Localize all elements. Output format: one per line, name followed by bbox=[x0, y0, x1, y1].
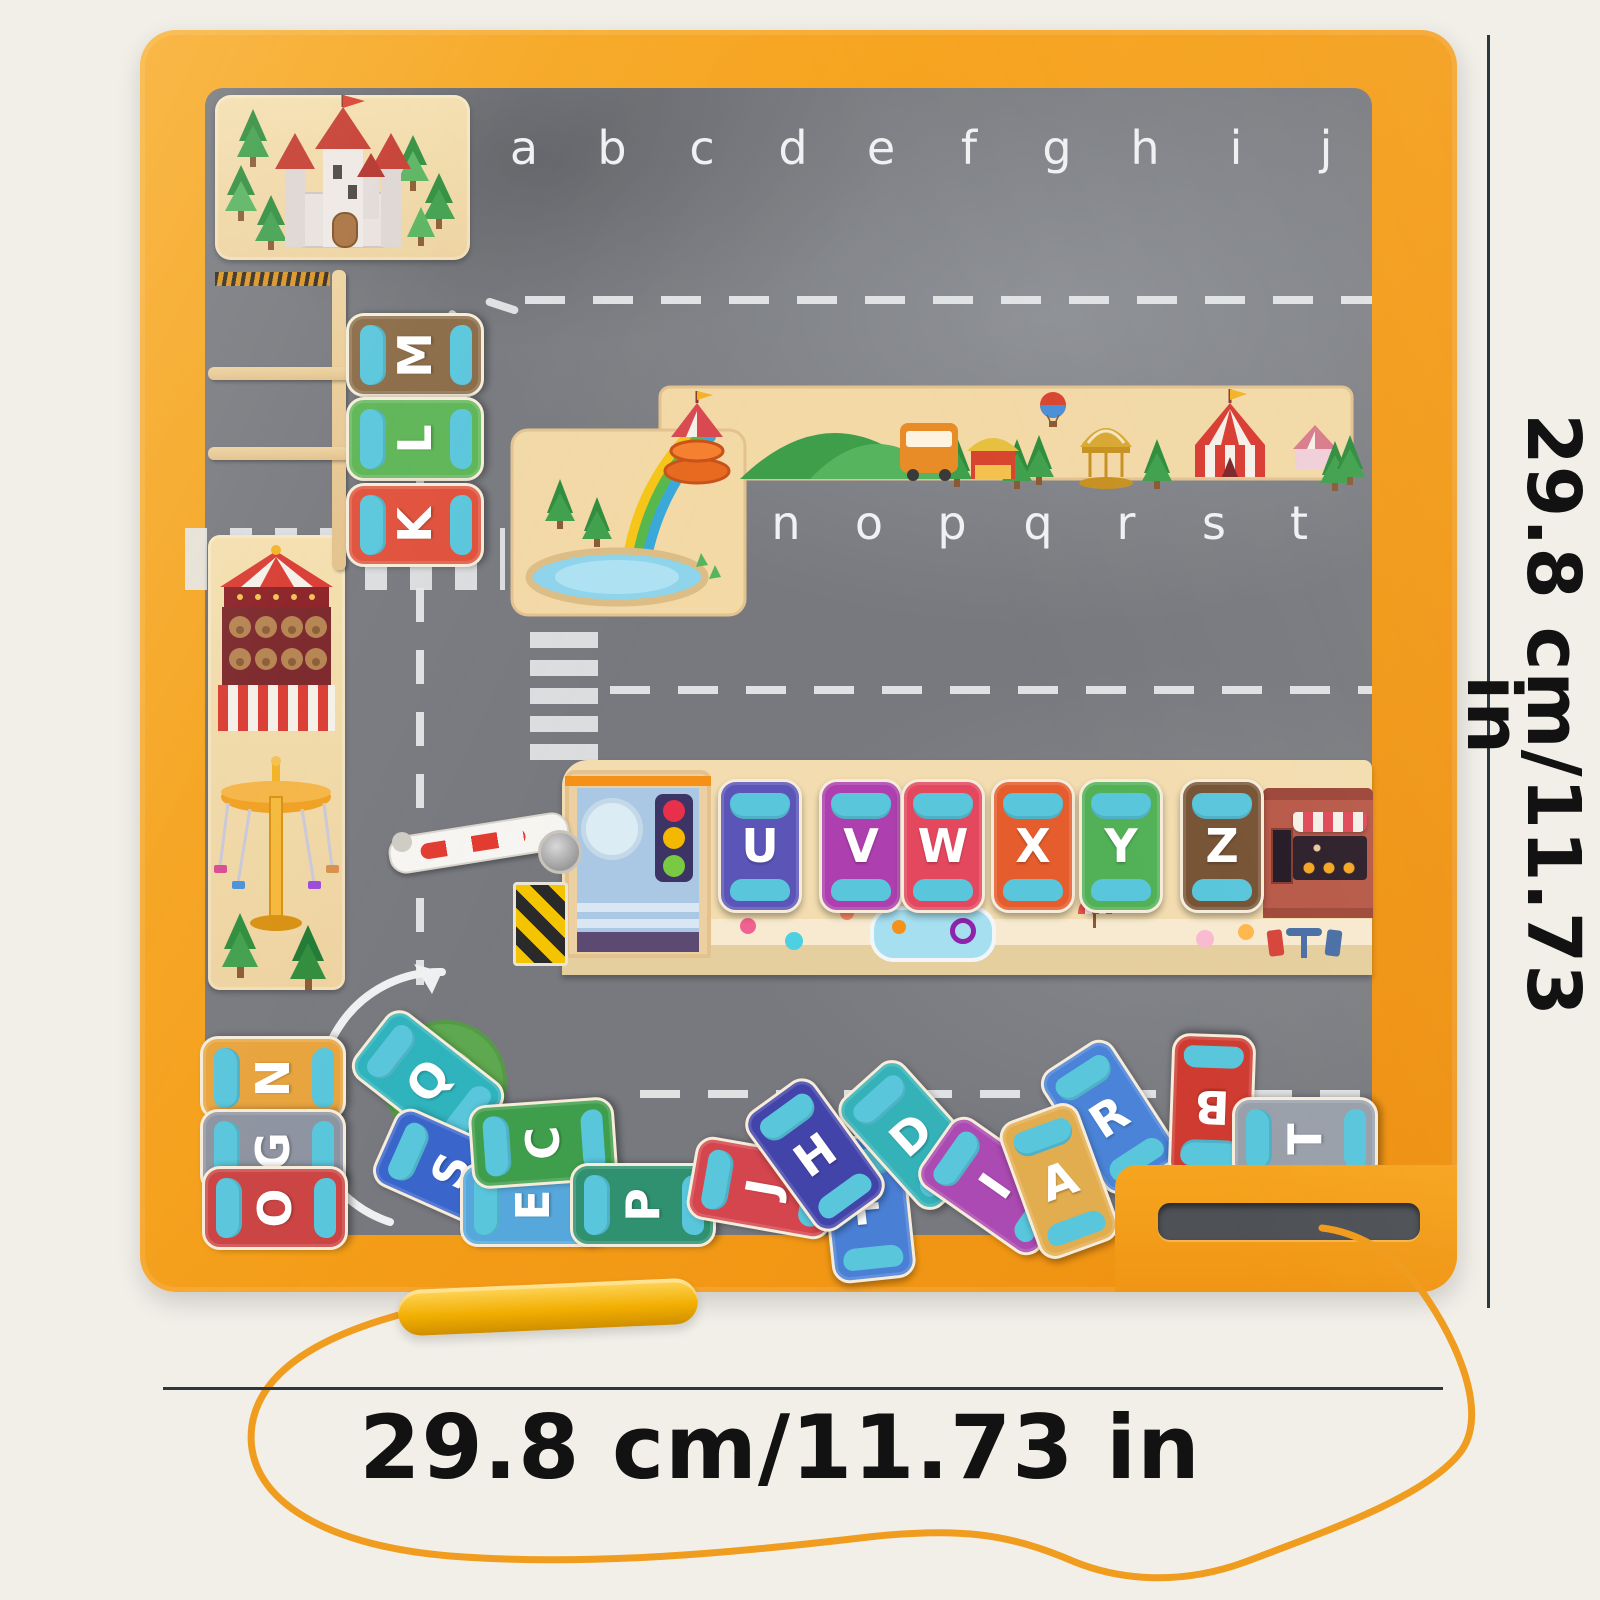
car-letter: U bbox=[741, 819, 778, 873]
candy-decor bbox=[1238, 924, 1254, 940]
carnival-booth-illustration bbox=[208, 535, 345, 990]
car-letter: C bbox=[515, 1124, 571, 1161]
slot-wall bbox=[332, 270, 346, 570]
castle-panel bbox=[215, 95, 470, 260]
candy-decor bbox=[740, 918, 756, 934]
letter-car-Z: Z bbox=[1180, 779, 1264, 913]
car-letter: T bbox=[1278, 1123, 1332, 1154]
cafe-table bbox=[1286, 928, 1322, 936]
car-letter: V bbox=[843, 819, 879, 873]
hazard-post bbox=[513, 882, 568, 966]
letter-car-U: U bbox=[718, 779, 802, 913]
car-letter: W bbox=[918, 819, 969, 873]
car-letter: M bbox=[388, 332, 442, 378]
letter-car-O: O bbox=[202, 1166, 348, 1250]
car-letter: B bbox=[1194, 1079, 1231, 1134]
car-letter: H bbox=[784, 1122, 847, 1188]
letter-car-W: W bbox=[901, 779, 985, 913]
swing-ride-illustration bbox=[214, 756, 339, 931]
dimension-line-horizontal bbox=[163, 1387, 1443, 1390]
cafe-chair bbox=[1324, 929, 1342, 957]
letter-car-X: X bbox=[991, 779, 1075, 913]
car-letter: N bbox=[246, 1059, 300, 1098]
booth-window bbox=[581, 798, 643, 860]
car-letter: Z bbox=[1205, 819, 1238, 873]
carnival-panel bbox=[208, 535, 345, 990]
slot-letter-e: e bbox=[851, 119, 911, 177]
letter-car-V: V bbox=[819, 779, 903, 913]
slot-letter-r: r bbox=[1096, 494, 1156, 552]
cafe-illustration bbox=[1263, 788, 1373, 918]
letter-car-M: M bbox=[346, 313, 484, 397]
pinwheel-decor bbox=[1196, 930, 1214, 948]
car-letter: L bbox=[388, 424, 442, 453]
product-photo: a b c d e f g h i j n o p q r s t M L K … bbox=[0, 0, 1600, 1600]
slot-letter-a: a bbox=[494, 119, 554, 177]
booth-base bbox=[577, 932, 699, 952]
car-letter: X bbox=[1015, 819, 1050, 873]
pinwheel-decor bbox=[785, 932, 803, 950]
road-center-line-middle bbox=[610, 686, 1372, 694]
castle-illustration bbox=[215, 95, 470, 260]
traffic-light-icon bbox=[655, 794, 693, 882]
slot-divider bbox=[208, 447, 350, 460]
car-letter: A bbox=[1033, 1150, 1085, 1213]
maze-board: a b c d e f g h i j n o p q r s t M L K … bbox=[140, 30, 1457, 1292]
car-letter: G bbox=[246, 1132, 300, 1170]
dimension-label-width: 29.8 cm/11.73 in bbox=[330, 1398, 1230, 1498]
booth-stripe bbox=[577, 919, 699, 928]
slot-letter-q: q bbox=[1008, 494, 1068, 552]
slot-letter-o: o bbox=[839, 494, 899, 552]
toll-booth bbox=[565, 770, 711, 958]
crosswalk-middle bbox=[530, 632, 598, 765]
car-letter: P bbox=[616, 1188, 670, 1222]
letter-car-L: L bbox=[346, 397, 484, 481]
string-notch-slot bbox=[1158, 1203, 1420, 1240]
letter-car-K: K bbox=[346, 483, 484, 567]
slot-letter-s: s bbox=[1184, 494, 1244, 552]
car-letter: O bbox=[248, 1188, 302, 1227]
slot-divider bbox=[208, 367, 350, 380]
slot-letter-h: h bbox=[1115, 119, 1175, 177]
car-letter: K bbox=[388, 507, 442, 543]
slot-letter-b: b bbox=[582, 119, 642, 177]
slot-letter-n: n bbox=[756, 494, 816, 552]
slot-letter-d: d bbox=[763, 119, 823, 177]
slot-letter-f: f bbox=[939, 119, 999, 177]
slot-letter-t: t bbox=[1269, 494, 1329, 552]
mini-pool-decor bbox=[870, 906, 996, 962]
road-center-line-top bbox=[525, 296, 1372, 304]
car-letter: E bbox=[506, 1189, 560, 1220]
car-letter: Q bbox=[395, 1049, 462, 1113]
bus-illustration bbox=[900, 423, 958, 481]
letter-car-Y: Y bbox=[1079, 779, 1163, 913]
letter-car-N: N bbox=[200, 1036, 346, 1120]
dimension-label-height: 29.8 cm/11.73 in bbox=[1523, 365, 1583, 1065]
hatch-strip bbox=[215, 272, 330, 286]
cafe-chair bbox=[1266, 929, 1284, 957]
barrier-pivot bbox=[538, 830, 582, 874]
barrier-hinge bbox=[392, 832, 412, 852]
car-letter: Y bbox=[1104, 819, 1137, 873]
dimension-line-vertical bbox=[1487, 35, 1490, 1308]
slot-letter-j: j bbox=[1296, 119, 1356, 177]
slot-letter-c: c bbox=[672, 119, 732, 177]
booth-roof bbox=[565, 776, 711, 786]
slot-letter-i: i bbox=[1206, 119, 1266, 177]
booth-stripe bbox=[577, 903, 699, 912]
slot-letter-g: g bbox=[1027, 119, 1087, 177]
slot-letter-p: p bbox=[922, 494, 982, 552]
